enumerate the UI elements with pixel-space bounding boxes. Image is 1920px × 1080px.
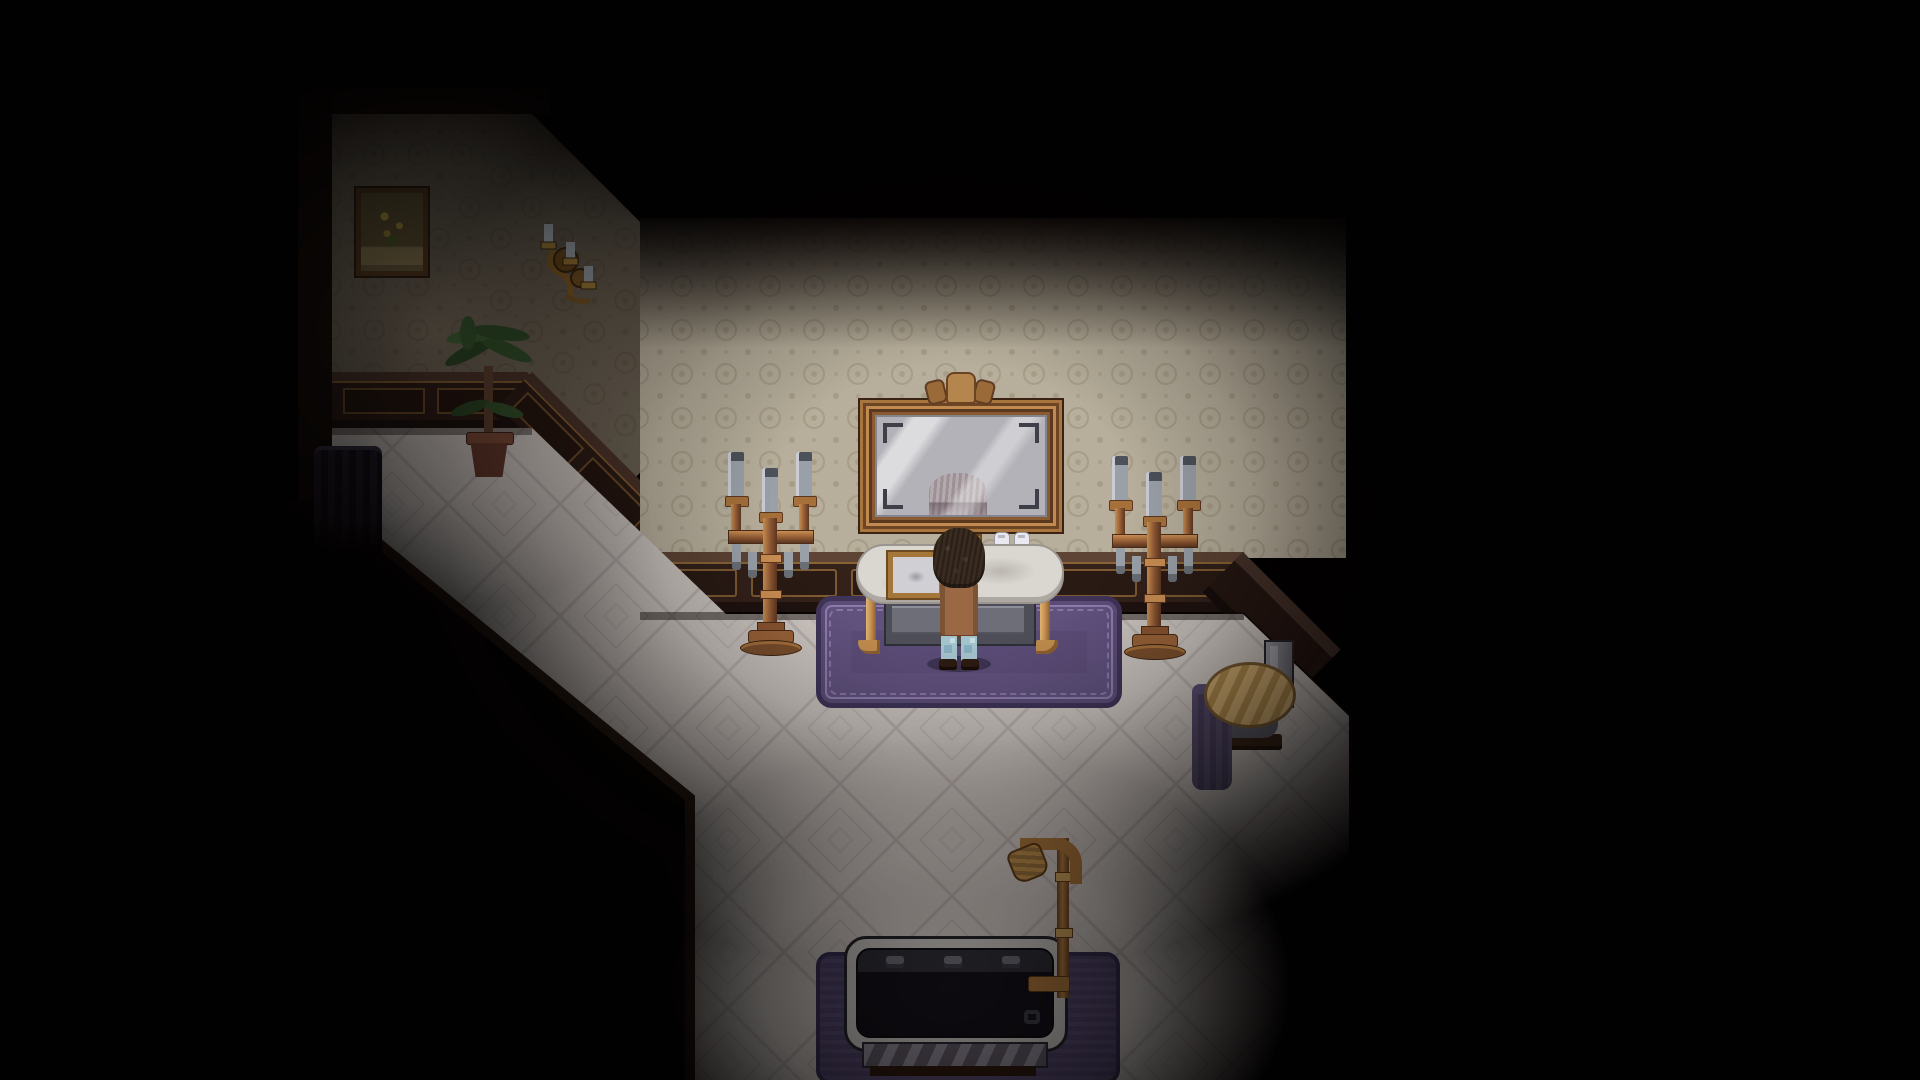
hanging-candle	[800, 544, 809, 570]
candle	[728, 452, 744, 498]
hanging-candle	[732, 544, 741, 570]
candelabra-pole	[763, 518, 777, 626]
candle	[1112, 456, 1128, 502]
candelabra-arm	[731, 504, 741, 532]
player-character[interactable]	[933, 528, 985, 670]
bathtub-interior	[856, 948, 1054, 1038]
mirror-corner-ornament	[883, 423, 903, 443]
crest-center	[946, 372, 976, 404]
mirror-glass	[875, 415, 1047, 517]
hanging-candle	[1116, 548, 1125, 574]
tub-fixture	[944, 956, 962, 968]
mirror-crest	[924, 372, 994, 402]
candelabra-arm	[1183, 508, 1193, 536]
mirror-corner-ornament	[1019, 489, 1039, 509]
candelabra-arm	[799, 504, 809, 532]
stool-group[interactable]	[1192, 636, 1304, 800]
tub-drain	[1024, 1010, 1040, 1024]
bathtub	[844, 936, 1068, 1052]
candelabra-arm	[1115, 508, 1125, 536]
character-shoes	[939, 659, 979, 670]
vanity-mirror[interactable]	[858, 398, 1064, 534]
tub-apron	[862, 1042, 1048, 1068]
tub-apron-base	[870, 1066, 1036, 1076]
candelabra-right[interactable]	[1110, 456, 1198, 664]
picture-frame[interactable]	[356, 188, 428, 276]
folding-screen[interactable]	[314, 446, 382, 554]
bathtub-group[interactable]	[814, 836, 1114, 1080]
crest-scroll	[923, 378, 948, 406]
candle	[796, 452, 812, 498]
potted-plant[interactable]	[448, 318, 528, 480]
candle	[762, 468, 778, 514]
tub-fixture	[886, 956, 904, 968]
pipe-joint	[1028, 976, 1070, 992]
pipe-fitting	[1055, 928, 1073, 938]
tub-fixture	[1002, 956, 1020, 968]
hanging-candle	[784, 552, 793, 578]
candle	[1180, 456, 1196, 502]
candelabra-pole	[1147, 522, 1161, 630]
character-hair	[933, 528, 985, 588]
sconce-graphic	[536, 220, 602, 308]
character-shirt	[940, 582, 978, 638]
plant-frond	[460, 316, 476, 350]
hanging-candle	[748, 552, 757, 578]
hanging-candle	[1168, 556, 1177, 582]
candelabra-left[interactable]	[726, 452, 814, 660]
mirror-corner-ornament	[1019, 423, 1039, 443]
hanging-candle	[1184, 548, 1193, 574]
wall-sconce[interactable]	[536, 220, 602, 308]
game-viewport	[0, 0, 1920, 1080]
candelabra-base	[1124, 644, 1186, 660]
hanging-candle	[1132, 556, 1141, 582]
plant-pot	[468, 443, 510, 477]
stool-top	[1204, 662, 1296, 728]
candle	[1146, 472, 1162, 518]
mirror-corner-ornament	[883, 489, 903, 509]
candelabra-base	[740, 640, 802, 656]
vanity-leg	[858, 596, 884, 658]
